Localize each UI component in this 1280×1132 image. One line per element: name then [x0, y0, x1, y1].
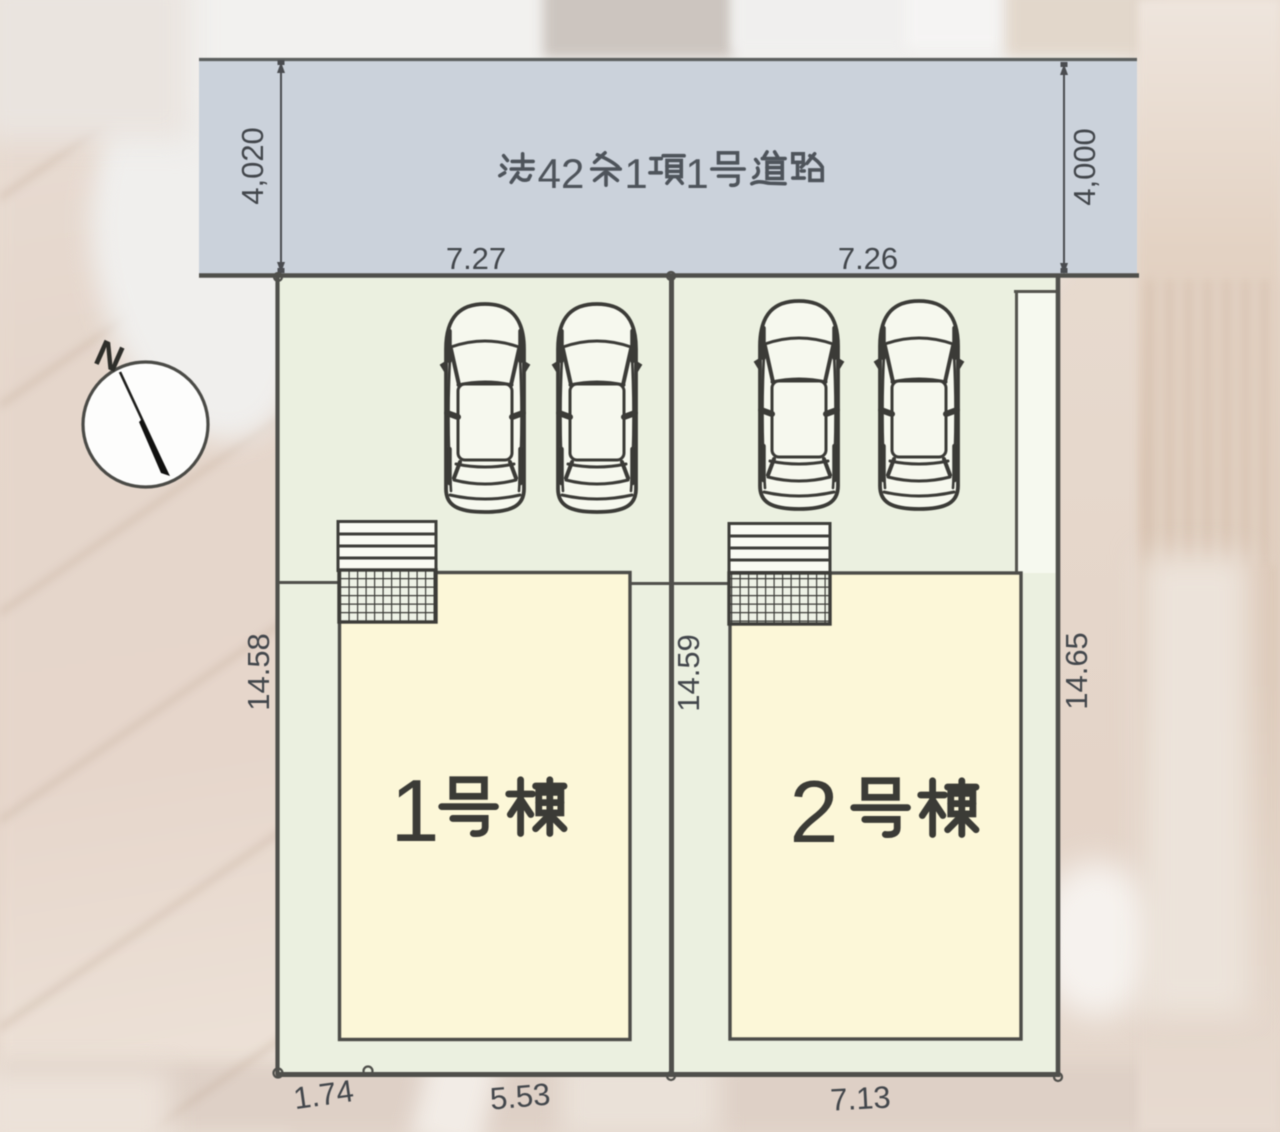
svg-text:4,000: 4,000	[1067, 128, 1102, 206]
svg-text:7.27: 7.27	[446, 241, 506, 276]
svg-text:1: 1	[685, 150, 708, 197]
svg-text:1: 1	[624, 150, 647, 197]
svg-text:14.59: 14.59	[671, 634, 706, 712]
svg-text:1.74: 1.74	[291, 1073, 356, 1116]
svg-text:7.13: 7.13	[829, 1079, 891, 1117]
svg-text:7.26: 7.26	[838, 241, 898, 276]
svg-text:14.65: 14.65	[1059, 632, 1094, 710]
svg-text:2: 2	[790, 762, 839, 861]
svg-text:42: 42	[538, 150, 585, 197]
svg-text:14.58: 14.58	[241, 633, 276, 711]
svg-text:4,020: 4,020	[235, 127, 270, 205]
svg-text:1: 1	[391, 761, 440, 860]
svg-text:5.53: 5.53	[489, 1076, 552, 1116]
